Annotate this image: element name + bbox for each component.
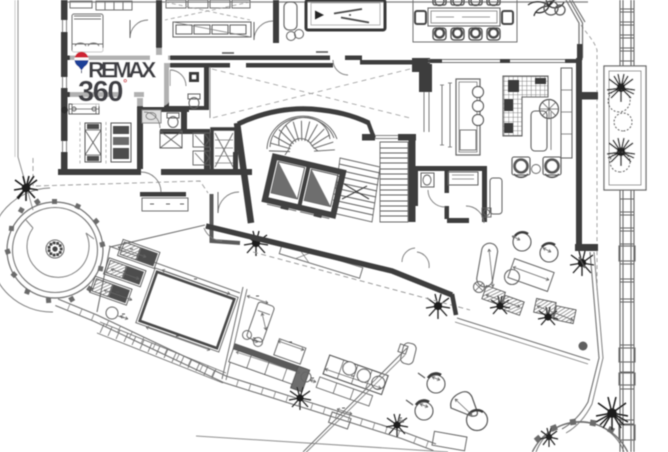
svg-text:°: °	[123, 78, 127, 90]
svg-text:360: 360	[78, 76, 123, 108]
